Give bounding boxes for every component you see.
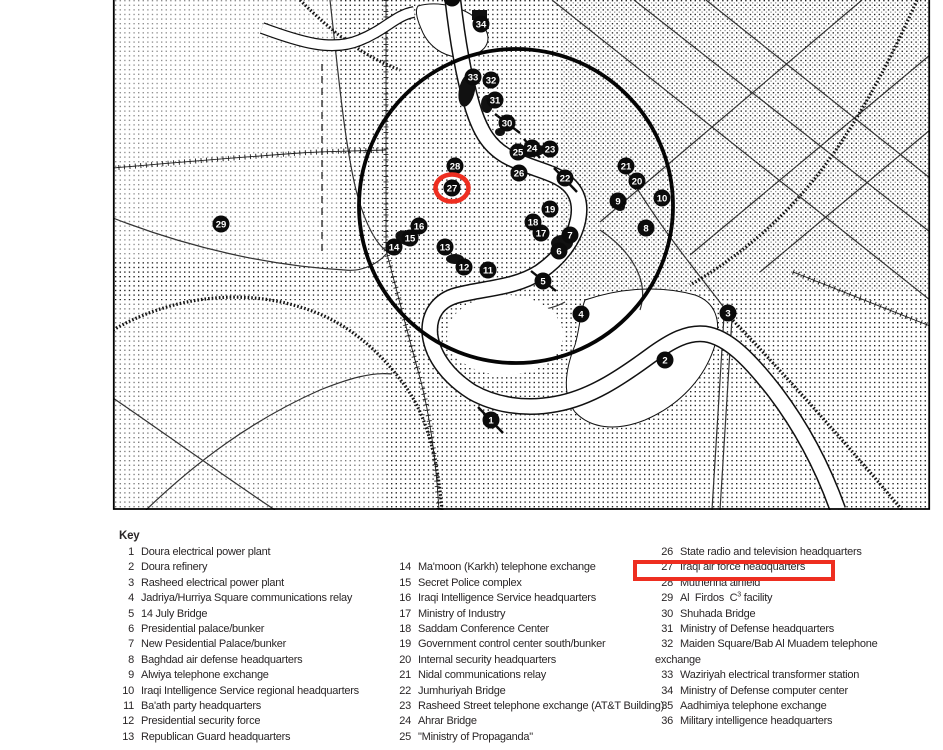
key-entry-31[interactable]: 31Ministry of Defense headquarters: [0, 622, 943, 637]
key-entry-number: 30: [647, 607, 673, 622]
key-entry-number: 32: [647, 637, 673, 652]
key-entry-25[interactable]: 25"Ministry of Propaganda": [0, 730, 943, 745]
key-entry-label: Waziriyah electrical transformer station: [680, 668, 859, 683]
key-entry-33[interactable]: 33Waziriyah electrical transformer stati…: [0, 668, 943, 683]
key-entry-label: Al Firdos C3 facility: [680, 591, 772, 606]
key-entry-number: 33: [647, 668, 673, 683]
key-entry-number: 35: [647, 699, 673, 714]
key-entry-32[interactable]: 32Maiden Square/Bab Al Muadem telephone: [0, 637, 943, 652]
key-entry-label: State radio and television headquarters: [680, 545, 862, 560]
key-entry-30[interactable]: 30Shuhada Bridge: [0, 607, 943, 622]
key-entry-32-wrap: exchange: [0, 653, 943, 668]
key-entry-label: Ministry of Defense headquarters: [680, 622, 834, 637]
page: { "colors": { "accent_red": "#ee2e20", "…: [0, 0, 943, 750]
key-entry-label: Maiden Square/Bab Al Muadem telephone: [680, 637, 877, 652]
key-entry-36[interactable]: 36Military intelligence headquarters: [0, 714, 943, 729]
key-entry-number: 31: [647, 622, 673, 637]
key-entry-35[interactable]: 35Aadhimiya telephone exchange: [0, 699, 943, 714]
key-entry-number: 29: [647, 591, 673, 606]
key-entry-label-wrap: exchange: [655, 653, 701, 668]
key-entry-label: Military intelligence headquarters: [680, 714, 832, 729]
key-title: Key: [119, 530, 140, 542]
key-entry-label: "Ministry of Propaganda": [418, 730, 533, 745]
key-entry-number: 36: [647, 714, 673, 729]
key-entry-label: Shuhada Bridge: [680, 607, 755, 622]
key-entry-number: 26: [647, 545, 673, 560]
key-entry-number: 25: [385, 730, 411, 745]
key-entry-34[interactable]: 34Ministry of Defense computer center: [0, 684, 943, 699]
key-entry-label: Ministry of Defense computer center: [680, 684, 848, 699]
map-key: Key 1Doura electrical power plant2Doura …: [0, 0, 943, 750]
key-highlight-box: [633, 560, 835, 581]
key-entry-number: 34: [647, 684, 673, 699]
key-entry-26[interactable]: 26State radio and television headquarter…: [0, 545, 943, 560]
key-entry-label: Aadhimiya telephone exchange: [680, 699, 827, 714]
key-entry-29[interactable]: 29Al Firdos C3 facility: [0, 591, 943, 606]
